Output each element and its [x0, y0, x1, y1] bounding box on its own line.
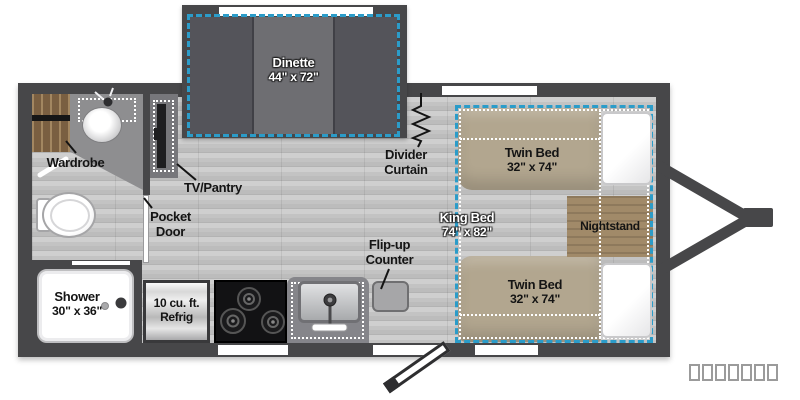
wardrobe-pointer-line — [66, 141, 76, 153]
flip-up-counter-pointer-line — [381, 269, 389, 289]
twin-bed-bottom-label: Twin Bed 32" x 74" — [465, 277, 605, 307]
shower-label: Shower 30" x 36" — [41, 289, 113, 319]
twin-bed-top-label: Twin Bed 32" x 74" — [462, 145, 602, 175]
flip-up-counter-label: Flip-up Counter — [352, 237, 427, 267]
annotation-layer — [0, 0, 800, 400]
divider-curtain-label: Divider Curtain — [366, 147, 446, 177]
burner-icon — [221, 309, 245, 333]
dinette-label: Dinette 44" x 72" — [187, 55, 400, 85]
dinette-dims: 44" x 72" — [187, 70, 400, 85]
king-bed-label: King Bed 74" x 82" — [407, 210, 527, 240]
pocket-door-label: Pocket Door — [143, 209, 198, 239]
refrigerator-label: 10 cu. ft. Refrig — [144, 296, 209, 324]
nightstand-label: Nightstand — [566, 219, 654, 234]
tv-pantry-pointer-line — [177, 164, 196, 180]
bath-faucet-icon — [95, 88, 113, 107]
wardrobe-label: Wardrobe — [38, 155, 113, 170]
divider-curtain-symbol — [413, 93, 429, 147]
dinette-name: Dinette — [187, 55, 400, 70]
burner-icon — [238, 288, 260, 310]
tv-pantry-label: TV/Pantry — [184, 180, 269, 195]
pocket-door-pointer-line — [144, 198, 152, 208]
burner-icon — [262, 311, 284, 333]
floorplan-canvas: Dinette 44" x 72" Divider Curtain Twin B… — [0, 0, 800, 400]
kitchen-faucet-icon — [312, 294, 347, 331]
